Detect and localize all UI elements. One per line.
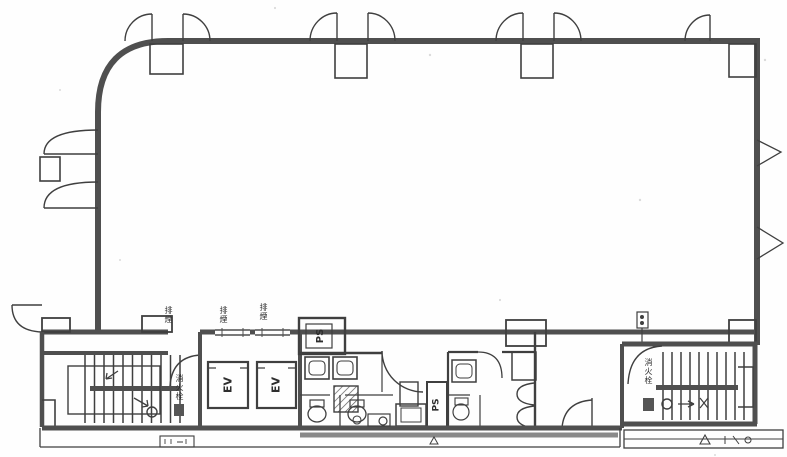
stair-left-hydrant-label: 消火栓 bbox=[175, 374, 183, 401]
floor-plan-canvas bbox=[0, 0, 787, 457]
stair-right bbox=[622, 344, 757, 424]
pipe-shaft-mid-label: PS bbox=[433, 398, 442, 411]
right-wall-doors bbox=[757, 140, 783, 259]
bottom-right-strip bbox=[624, 430, 783, 448]
smoke-vent-label-3: 排煙 bbox=[259, 303, 267, 321]
washroom-a bbox=[300, 351, 426, 428]
left-wall-openings bbox=[12, 130, 98, 332]
elevator-2-label: EV bbox=[271, 377, 282, 393]
hydrant-box-icon bbox=[174, 404, 184, 416]
elevator-hall bbox=[200, 332, 300, 428]
right-corridor bbox=[562, 344, 622, 428]
smoke-vent-label-1: 排煙 bbox=[164, 306, 172, 324]
floor-drain bbox=[379, 417, 387, 425]
hydrant-box-icon bbox=[643, 398, 654, 411]
urinal-2 bbox=[517, 406, 534, 428]
floor-plan-page: EV EV PS PS 排煙 排煙 排煙 消火栓 消火栓 bbox=[0, 0, 787, 457]
pipe-shaft-top-label: PS bbox=[316, 329, 326, 344]
urinal-1 bbox=[517, 383, 534, 405]
top-wall-doors bbox=[125, 13, 710, 41]
elevator-1-label: EV bbox=[223, 377, 234, 393]
top-wall-column-boxes bbox=[150, 44, 756, 78]
toilet-1 bbox=[308, 400, 326, 422]
smoke-vent-label-2: 排煙 bbox=[219, 306, 227, 324]
toilet-3 bbox=[453, 398, 469, 420]
stair-right-hydrant-label: 消火栓 bbox=[644, 358, 652, 385]
perimeter-walls bbox=[98, 41, 757, 345]
vent-marker-icons bbox=[637, 312, 648, 344]
dimension-note-box bbox=[160, 436, 194, 447]
